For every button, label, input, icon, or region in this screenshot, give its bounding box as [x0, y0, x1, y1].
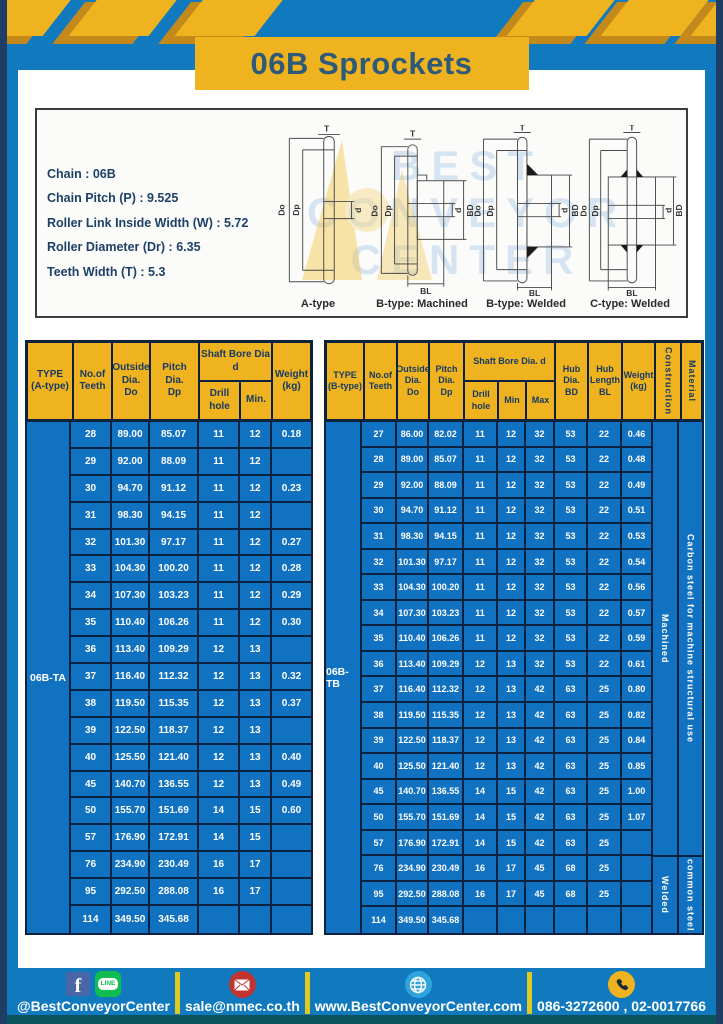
table-cell: 25	[586, 754, 620, 780]
dim-label-d: d	[560, 208, 570, 213]
table-cell: 30	[362, 499, 395, 525]
table-cell: 0.54	[620, 550, 651, 576]
table-cell: 109.29	[427, 652, 462, 678]
table-cell: 151.69	[427, 805, 462, 831]
table-cell: 113.40	[110, 637, 148, 664]
table-cell: 11	[197, 530, 238, 557]
title-banner: 06B Sprockets	[195, 37, 529, 90]
social-handle: @BestConveyorCenter	[17, 998, 170, 1014]
table-cell: 97.17	[148, 530, 197, 557]
table-cell	[620, 882, 651, 908]
dim-label-t: T	[629, 125, 635, 133]
table-cell: 0.23	[270, 476, 311, 503]
table-cell: 12	[496, 601, 524, 627]
table-cell: 288.08	[427, 882, 462, 908]
table-row: 36113.40109.291213	[71, 637, 311, 664]
phone-numbers: 086-3272600 , 02-0017766	[537, 998, 706, 1014]
table-cell: 15	[496, 805, 524, 831]
construction-machined: Machined	[653, 422, 677, 855]
table-cell: 0.84	[620, 729, 651, 755]
table-cell: 53	[553, 524, 586, 550]
table-b-body: 06B-TB 2786.0082.0211123253220.462889.00…	[324, 422, 704, 935]
table-cell: 22	[586, 601, 620, 627]
email-address: sale@nmec.co.th	[185, 998, 300, 1014]
dim-label-bd: BD	[674, 204, 682, 216]
table-cell: 17	[496, 882, 524, 908]
table-cell: 14	[197, 825, 238, 852]
table-cell: 39	[71, 718, 110, 745]
table-row: 32101.3097.1711123253220.54	[362, 550, 651, 576]
line-icon: LINE	[95, 971, 121, 997]
table-cell: 35	[362, 626, 395, 652]
hazard-stripe	[0, 0, 75, 36]
dim-label-do: Do	[579, 205, 589, 216]
table-cell: 32	[524, 626, 553, 652]
table-cell: 14	[197, 798, 238, 825]
table-cell: 42	[524, 677, 553, 703]
table-cell: 349.50	[395, 907, 427, 933]
phone-icon	[608, 971, 635, 998]
table-row: 57176.90172.911415426325	[362, 831, 651, 857]
table-cell: 22	[586, 550, 620, 576]
col-header-type: TYPE (B-type)	[326, 342, 364, 420]
col-header-shaft-bore: Shaft Bore Dia. d	[464, 342, 555, 381]
table-cell: 0.56	[620, 575, 651, 601]
table-cell: 63	[553, 754, 586, 780]
table-cell: 109.29	[148, 637, 197, 664]
table-b-rows: 2786.0082.0211123253220.462889.0085.0711…	[362, 422, 651, 933]
table-cell: 36	[362, 652, 395, 678]
table-cell: 32	[524, 550, 553, 576]
table-cell: 140.70	[395, 780, 427, 806]
table-cell	[270, 449, 311, 476]
table-cell: 22	[586, 499, 620, 525]
table-cell: 176.90	[395, 831, 427, 857]
table-cell: 103.23	[427, 601, 462, 627]
table-cell: 29	[71, 449, 110, 476]
hazard-stripe	[507, 0, 620, 36]
sprocket-diagram-b-welded: T Do Dp d BD BL B-type: Welded	[474, 114, 578, 316]
table-cell: 12	[197, 691, 238, 718]
table-cell: 13	[496, 703, 524, 729]
table-cell: 0.29	[270, 583, 311, 610]
table-row: 37116.40112.3212130.32	[71, 664, 311, 691]
table-cell: 53	[553, 448, 586, 474]
table-cell: 349.50	[110, 906, 148, 933]
table-cell: 13	[496, 729, 524, 755]
table-cell: 92.00	[395, 473, 427, 499]
table-cell: 27	[362, 422, 395, 448]
table-row: 38119.50115.3512130.37	[71, 691, 311, 718]
table-row: 45140.70136.5514154263251.00	[362, 780, 651, 806]
col-header-weight: Weight (kg)	[622, 342, 655, 420]
table-cell: 119.50	[110, 691, 148, 718]
table-cell: 11	[462, 473, 496, 499]
spec-tables: TYPE (A-type) No.of Teeth Outside Dia. D…	[18, 340, 705, 935]
table-cell: 12	[496, 550, 524, 576]
table-cell: 101.30	[110, 530, 148, 557]
table-cell: 14	[462, 780, 496, 806]
table-cell: 38	[71, 691, 110, 718]
table-cell: 136.55	[148, 772, 197, 799]
table-cell: 30	[71, 476, 110, 503]
col-header-type: TYPE (A-type)	[27, 342, 73, 420]
table-cell: 31	[362, 524, 395, 550]
table-cell: 36	[71, 637, 110, 664]
table-cell: 121.40	[427, 754, 462, 780]
sprocket-diagram-c-welded: T Do Dp d BD BL C-type: Welded	[578, 114, 682, 316]
table-cell: 118.37	[427, 729, 462, 755]
table-cell: 53	[553, 550, 586, 576]
table-cell: 98.30	[110, 503, 148, 530]
col-header-pitch-dia: Pitch Dia. Dp	[429, 342, 464, 420]
table-cell: 13	[238, 745, 270, 772]
table-cell: 0.46	[620, 422, 651, 448]
dim-label-bl: BL	[529, 288, 540, 297]
col-header-hub-dia: Hub Dia. BD	[555, 342, 588, 420]
table-cell: 104.30	[110, 556, 148, 583]
table-cell	[496, 907, 524, 933]
table-cell: 0.51	[620, 499, 651, 525]
table-row: 40125.50121.4012130.40	[71, 745, 311, 772]
table-cell: 25	[586, 882, 620, 908]
construction-welded: Welded	[653, 855, 677, 933]
table-cell	[238, 906, 270, 933]
table-cell: 122.50	[395, 729, 427, 755]
table-cell: 112.32	[148, 664, 197, 691]
table-cell: 13	[238, 718, 270, 745]
table-cell: 15	[496, 831, 524, 857]
table-cell: 11	[462, 422, 496, 448]
dim-label-bd: BD	[570, 204, 578, 216]
type-label-cell: 06B-TB	[326, 422, 362, 933]
diagram-caption: B-type: Machined	[376, 298, 468, 310]
table-cell	[270, 825, 311, 852]
spec-line: Chain : 06B	[47, 162, 266, 186]
table-cell: 25	[586, 703, 620, 729]
diagram-caption: B-type: Welded	[486, 298, 566, 310]
table-cell: 76	[71, 852, 110, 879]
table-cell: 85.07	[427, 448, 462, 474]
table-a-header: TYPE (A-type) No.of Teeth Outside Dia. D…	[25, 340, 313, 422]
table-cell: 34	[71, 583, 110, 610]
col-header-min: Min	[498, 381, 526, 420]
table-cell: 45	[71, 772, 110, 799]
table-cell: 12	[238, 610, 270, 637]
col-header-drill-hole: Drill hole	[464, 381, 498, 420]
table-cell: 25	[586, 856, 620, 882]
col-header-material: Material	[681, 342, 702, 420]
table-cell: 12	[496, 575, 524, 601]
spec-line: Teeth Width (T) : 5.3	[47, 260, 266, 284]
table-cell: 0.30	[270, 610, 311, 637]
table-cell: 11	[197, 583, 238, 610]
table-cell: 89.00	[110, 422, 148, 449]
col-header-shaft-bore: Shaft Bore Dia d	[199, 342, 272, 381]
table-cell: 11	[197, 610, 238, 637]
dim-label-t: T	[324, 125, 330, 134]
table-cell: 12	[496, 499, 524, 525]
table-cell: 40	[71, 745, 110, 772]
table-cell: 91.12	[427, 499, 462, 525]
table-cell: 39	[362, 729, 395, 755]
table-cell: 22	[586, 626, 620, 652]
table-cell: 11	[462, 524, 496, 550]
table-cell: 101.30	[395, 550, 427, 576]
table-cell	[270, 906, 311, 933]
table-cell: 1.07	[620, 805, 651, 831]
table-cell: 118.37	[148, 718, 197, 745]
type-label-cell: 06B-TA	[27, 422, 71, 933]
table-cell: 115.35	[427, 703, 462, 729]
table-cell	[270, 852, 311, 879]
table-cell: 42	[524, 729, 553, 755]
table-row: 34107.30103.2311120.29	[71, 583, 311, 610]
col-header-max: Max	[526, 381, 555, 420]
table-cell: 29	[362, 473, 395, 499]
dim-label-d: d	[353, 208, 363, 213]
table-cell: 0.61	[620, 652, 651, 678]
table-cell: 33	[362, 575, 395, 601]
table-cell: 0.32	[270, 664, 311, 691]
table-cell: 15	[496, 780, 524, 806]
phone-contact: 086-3272600 , 02-0017766	[537, 971, 706, 1014]
table-cell: 32	[71, 530, 110, 557]
table-cell: 0.60	[270, 798, 311, 825]
table-cell: 82.02	[427, 422, 462, 448]
table-cell: 107.30	[110, 583, 148, 610]
table-cell: 32	[524, 652, 553, 678]
table-cell: 13	[496, 652, 524, 678]
hazard-stripe	[175, 0, 288, 36]
dim-label-t: T	[520, 125, 526, 133]
table-cell: 0.40	[270, 745, 311, 772]
table-cell: 14	[462, 805, 496, 831]
table-cell: 28	[71, 422, 110, 449]
table-cell: 0.48	[620, 448, 651, 474]
spec-line: Chain Pitch (P) : 9.525	[47, 186, 266, 210]
table-cell: 42	[524, 780, 553, 806]
table-cell: 100.20	[148, 556, 197, 583]
table-cell: 25	[586, 729, 620, 755]
table-cell: 0.59	[620, 626, 651, 652]
table-cell: 113.40	[395, 652, 427, 678]
table-cell: 35	[71, 610, 110, 637]
table-cell: 13	[496, 677, 524, 703]
table-cell: 89.00	[395, 448, 427, 474]
flyer-page: 06B Sprockets BEST CONVEYOR CENTER Chain…	[0, 0, 723, 1024]
table-cell: 12	[238, 503, 270, 530]
table-row: 2786.0082.0211123253220.46	[362, 422, 651, 448]
table-cell: 12	[496, 626, 524, 652]
table-cell: 106.26	[427, 626, 462, 652]
table-cell: 11	[462, 499, 496, 525]
table-cell: 57	[362, 831, 395, 857]
table-cell: 12	[197, 745, 238, 772]
dim-label-do: Do	[277, 204, 287, 215]
table-cell: 12	[197, 637, 238, 664]
footer-divider	[305, 972, 310, 1014]
material-common-steel: common steel	[679, 855, 702, 933]
material-carbon-steel: Carbon steel for machine structural use	[679, 422, 702, 855]
table-cell: 45	[362, 780, 395, 806]
col-header-weight: Weight (kg)	[272, 342, 311, 420]
table-cell: 12	[238, 422, 270, 449]
social-contact: f LINE @BestConveyorCenter	[17, 971, 170, 1014]
table-cell	[553, 907, 586, 933]
table-cell: 17	[238, 879, 270, 906]
table-cell: 0.28	[270, 556, 311, 583]
table-row: 114349.50345.68	[362, 907, 651, 933]
table-row: 3094.7091.1211123253220.51	[362, 499, 651, 525]
spec-line: Roller Link Inside Width (W) : 5.72	[47, 211, 266, 235]
table-cell: 53	[553, 626, 586, 652]
table-cell: 0.80	[620, 677, 651, 703]
table-cell: 86.00	[395, 422, 427, 448]
table-cell: 22	[586, 524, 620, 550]
table-cell: 16	[197, 852, 238, 879]
material-column: Carbon steel for machine structural use …	[677, 422, 702, 933]
table-cell: 0.37	[270, 691, 311, 718]
table-cell: 32	[524, 524, 553, 550]
table-cell: 103.23	[148, 583, 197, 610]
table-cell: 22	[586, 652, 620, 678]
email-contact: sale@nmec.co.th	[185, 971, 300, 1014]
table-cell: 12	[197, 664, 238, 691]
table-cell: 15	[238, 798, 270, 825]
table-b-type: TYPE (B-type) No.of Teeth Outside Dia. D…	[324, 340, 704, 935]
table-cell: 13	[496, 754, 524, 780]
table-cell: 11	[462, 448, 496, 474]
table-cell: 95	[362, 882, 395, 908]
table-cell: 16	[197, 879, 238, 906]
construction-column: Machined Welded	[651, 422, 677, 933]
table-cell: 40	[362, 754, 395, 780]
table-cell: 12	[238, 583, 270, 610]
table-cell	[270, 503, 311, 530]
dim-label-dp: Dp	[485, 205, 495, 216]
table-cell: 37	[362, 677, 395, 703]
table-cell: 12	[496, 473, 524, 499]
table-cell: 11	[197, 422, 238, 449]
table-cell: 42	[524, 703, 553, 729]
table-row: 45140.70136.5512130.49	[71, 772, 311, 799]
table-cell: 11	[197, 503, 238, 530]
table-cell: 1.00	[620, 780, 651, 806]
table-row: 3094.7091.1211120.23	[71, 476, 311, 503]
table-cell: 13	[238, 637, 270, 664]
table-cell: 31	[71, 503, 110, 530]
table-row: 33104.30100.2011123253220.56	[362, 575, 651, 601]
table-cell: 16	[462, 882, 496, 908]
table-cell: 42	[524, 754, 553, 780]
table-row: 40125.50121.4012134263250.85	[362, 754, 651, 780]
table-cell: 32	[524, 575, 553, 601]
col-header-construction: Construction	[655, 342, 681, 420]
diagram-caption: C-type: Welded	[590, 298, 670, 310]
table-cell: 12	[462, 754, 496, 780]
table-cell: 53	[553, 473, 586, 499]
table-cell: 12	[496, 448, 524, 474]
dim-label-bl: BL	[420, 286, 431, 296]
table-row: 2992.0088.0911123253220.49	[362, 473, 651, 499]
table-cell	[620, 831, 651, 857]
table-cell: 15	[238, 825, 270, 852]
table-cell	[620, 907, 651, 933]
table-cell: 122.50	[110, 718, 148, 745]
table-cell: 12	[197, 718, 238, 745]
table-cell: 63	[553, 831, 586, 857]
table-cell: 234.90	[395, 856, 427, 882]
table-cell: 172.91	[148, 825, 197, 852]
table-cell: 116.40	[395, 677, 427, 703]
table-cell: 25	[586, 831, 620, 857]
table-cell: 0.49	[270, 772, 311, 799]
table-cell: 28	[362, 448, 395, 474]
table-cell: 12	[238, 556, 270, 583]
website-contact: www.BestConveyorCenter.com	[315, 971, 522, 1014]
table-row: 34107.30103.2311123253220.57	[362, 601, 651, 627]
table-cell: 32	[524, 601, 553, 627]
table-cell: 33	[71, 556, 110, 583]
table-cell: 234.90	[110, 852, 148, 879]
table-cell: 32	[362, 550, 395, 576]
table-cell: 22	[586, 448, 620, 474]
bottom-accent-strip	[7, 1015, 716, 1024]
table-cell: 85.07	[148, 422, 197, 449]
table-cell: 14	[462, 831, 496, 857]
table-row: 95292.50288.081617456825	[362, 882, 651, 908]
table-cell: 12	[496, 422, 524, 448]
dim-label-do: Do	[474, 205, 483, 216]
table-cell: 0.53	[620, 524, 651, 550]
table-cell: 345.68	[148, 906, 197, 933]
table-cell	[197, 906, 238, 933]
line-icon-label: LINE	[98, 978, 119, 991]
table-cell: 12	[238, 530, 270, 557]
table-cell: 53	[553, 499, 586, 525]
table-cell: 32	[524, 422, 553, 448]
table-cell: 57	[71, 825, 110, 852]
col-header-drill-hole: Drill hole	[199, 381, 240, 420]
table-row: 35110.40106.2611123253220.59	[362, 626, 651, 652]
table-cell: 107.30	[395, 601, 427, 627]
table-cell: 0.18	[270, 422, 311, 449]
table-cell: 12	[238, 476, 270, 503]
dim-label-t: T	[410, 128, 416, 138]
table-cell: 32	[524, 499, 553, 525]
table-cell: 121.40	[148, 745, 197, 772]
diagram-box: BEST CONVEYOR CENTER Chain : 06B Chain P…	[35, 108, 688, 318]
table-cell	[270, 718, 311, 745]
social-icons: f LINE	[66, 971, 121, 997]
table-row: 39122.50118.371213	[71, 718, 311, 745]
table-row: 3198.3094.151112	[71, 503, 311, 530]
table-cell: 68	[553, 856, 586, 882]
table-cell: 114	[71, 906, 110, 933]
dim-label-d: d	[664, 208, 674, 213]
table-cell	[462, 907, 496, 933]
table-cell	[586, 907, 620, 933]
table-cell: 155.70	[110, 798, 148, 825]
table-cell: 50	[362, 805, 395, 831]
table-cell: 110.40	[395, 626, 427, 652]
table-cell: 38	[362, 703, 395, 729]
table-row: 2889.0085.0711120.18	[71, 422, 311, 449]
table-cell: 88.09	[427, 473, 462, 499]
col-header-pitch-dia: Pitch Dia. Dp	[150, 342, 199, 420]
table-cell: 53	[553, 575, 586, 601]
